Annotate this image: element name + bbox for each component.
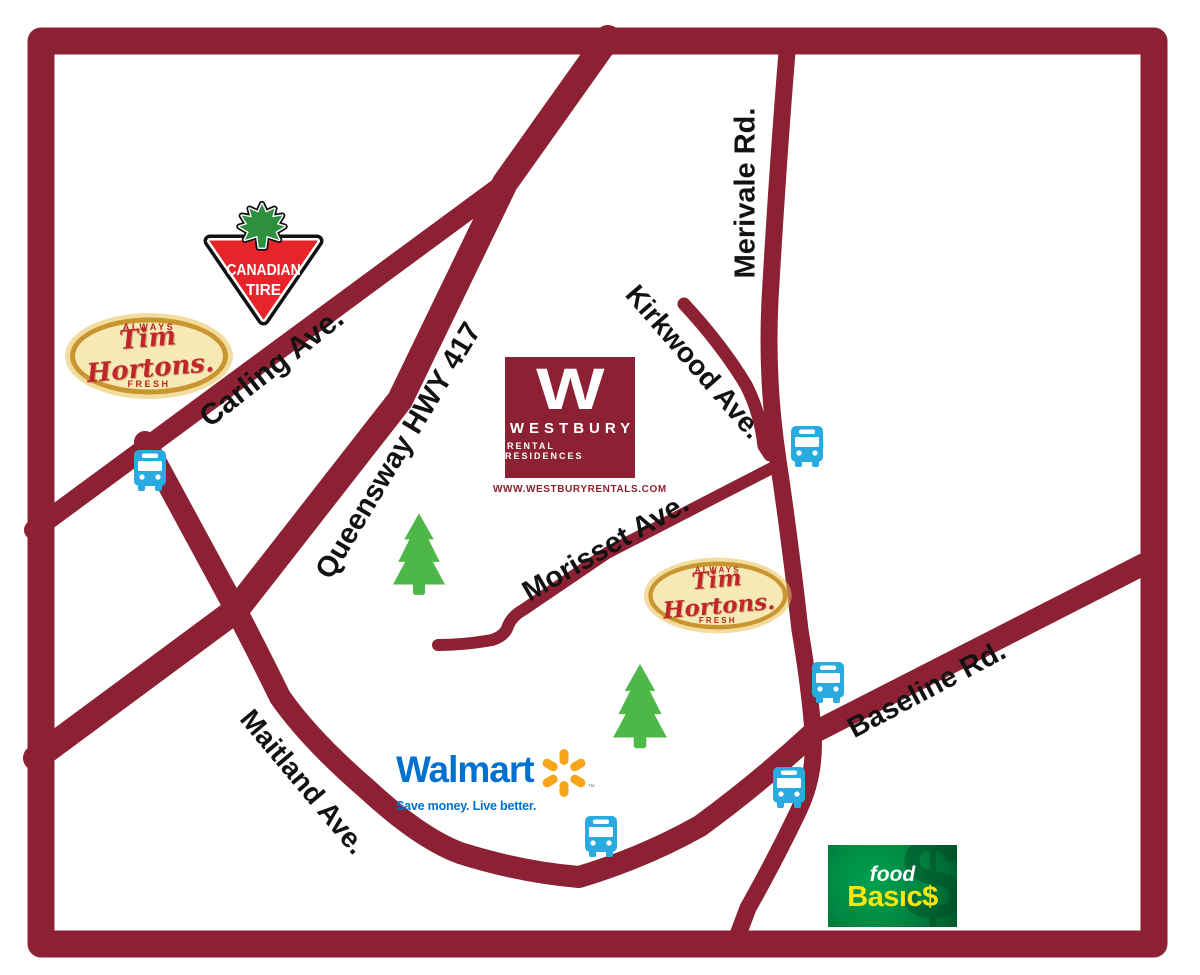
maple-leaf-icon [239, 204, 284, 248]
canadian-tire-wordmark-line2: TIRE [246, 282, 281, 299]
walmart-spark-icon [538, 746, 590, 798]
bus-icon [582, 813, 620, 859]
road-label-merivale: Merivale Rd. [730, 108, 763, 279]
canadian-tire-logo: CANADIAN TIRE [196, 198, 331, 328]
pine-tree-icon [612, 664, 668, 755]
tim-hortons-logo: ALWAYS Tim Hortons. FRESH [64, 310, 234, 402]
walmart-wordmark: Walmart [396, 750, 534, 790]
tim-hortons-logo: ALWAYS Tim Hortons. FRESH [643, 555, 793, 636]
walmart-logo: Walmart ™ Save money. Live better. [396, 750, 611, 820]
food-basics-logo: $ food Basıc$ [828, 845, 957, 927]
bus-icon [770, 764, 808, 810]
canadian-tire-wordmark-line1: CANADIAN [226, 262, 300, 279]
bus-icon [809, 659, 847, 705]
westbury-website: WWW.WESTBURYRENTALS.COM [493, 484, 653, 495]
pine-tree-icon [393, 513, 445, 602]
food-basics-basics: Basıc$ [828, 882, 957, 912]
westbury-w-monogram: W [536, 364, 604, 416]
tim-hortons-fresh: FRESH [64, 379, 234, 389]
canadian-tire-triangle [210, 241, 317, 319]
westbury-name: WESTBURY [505, 420, 635, 437]
bus-icon [788, 423, 826, 469]
westbury-logo: W WESTBURY RENTAL RESIDENCES [505, 357, 635, 478]
tim-hortons-fresh: FRESH [643, 616, 793, 625]
bus-icon [131, 447, 169, 493]
walmart-trademark: ™ [588, 784, 595, 791]
location-map: Carling Ave. Queensway HWY 417 Merivale … [0, 0, 1200, 975]
walmart-tagline: Save money. Live better. [396, 799, 611, 813]
westbury-subtitle: RENTAL RESIDENCES [505, 441, 635, 461]
